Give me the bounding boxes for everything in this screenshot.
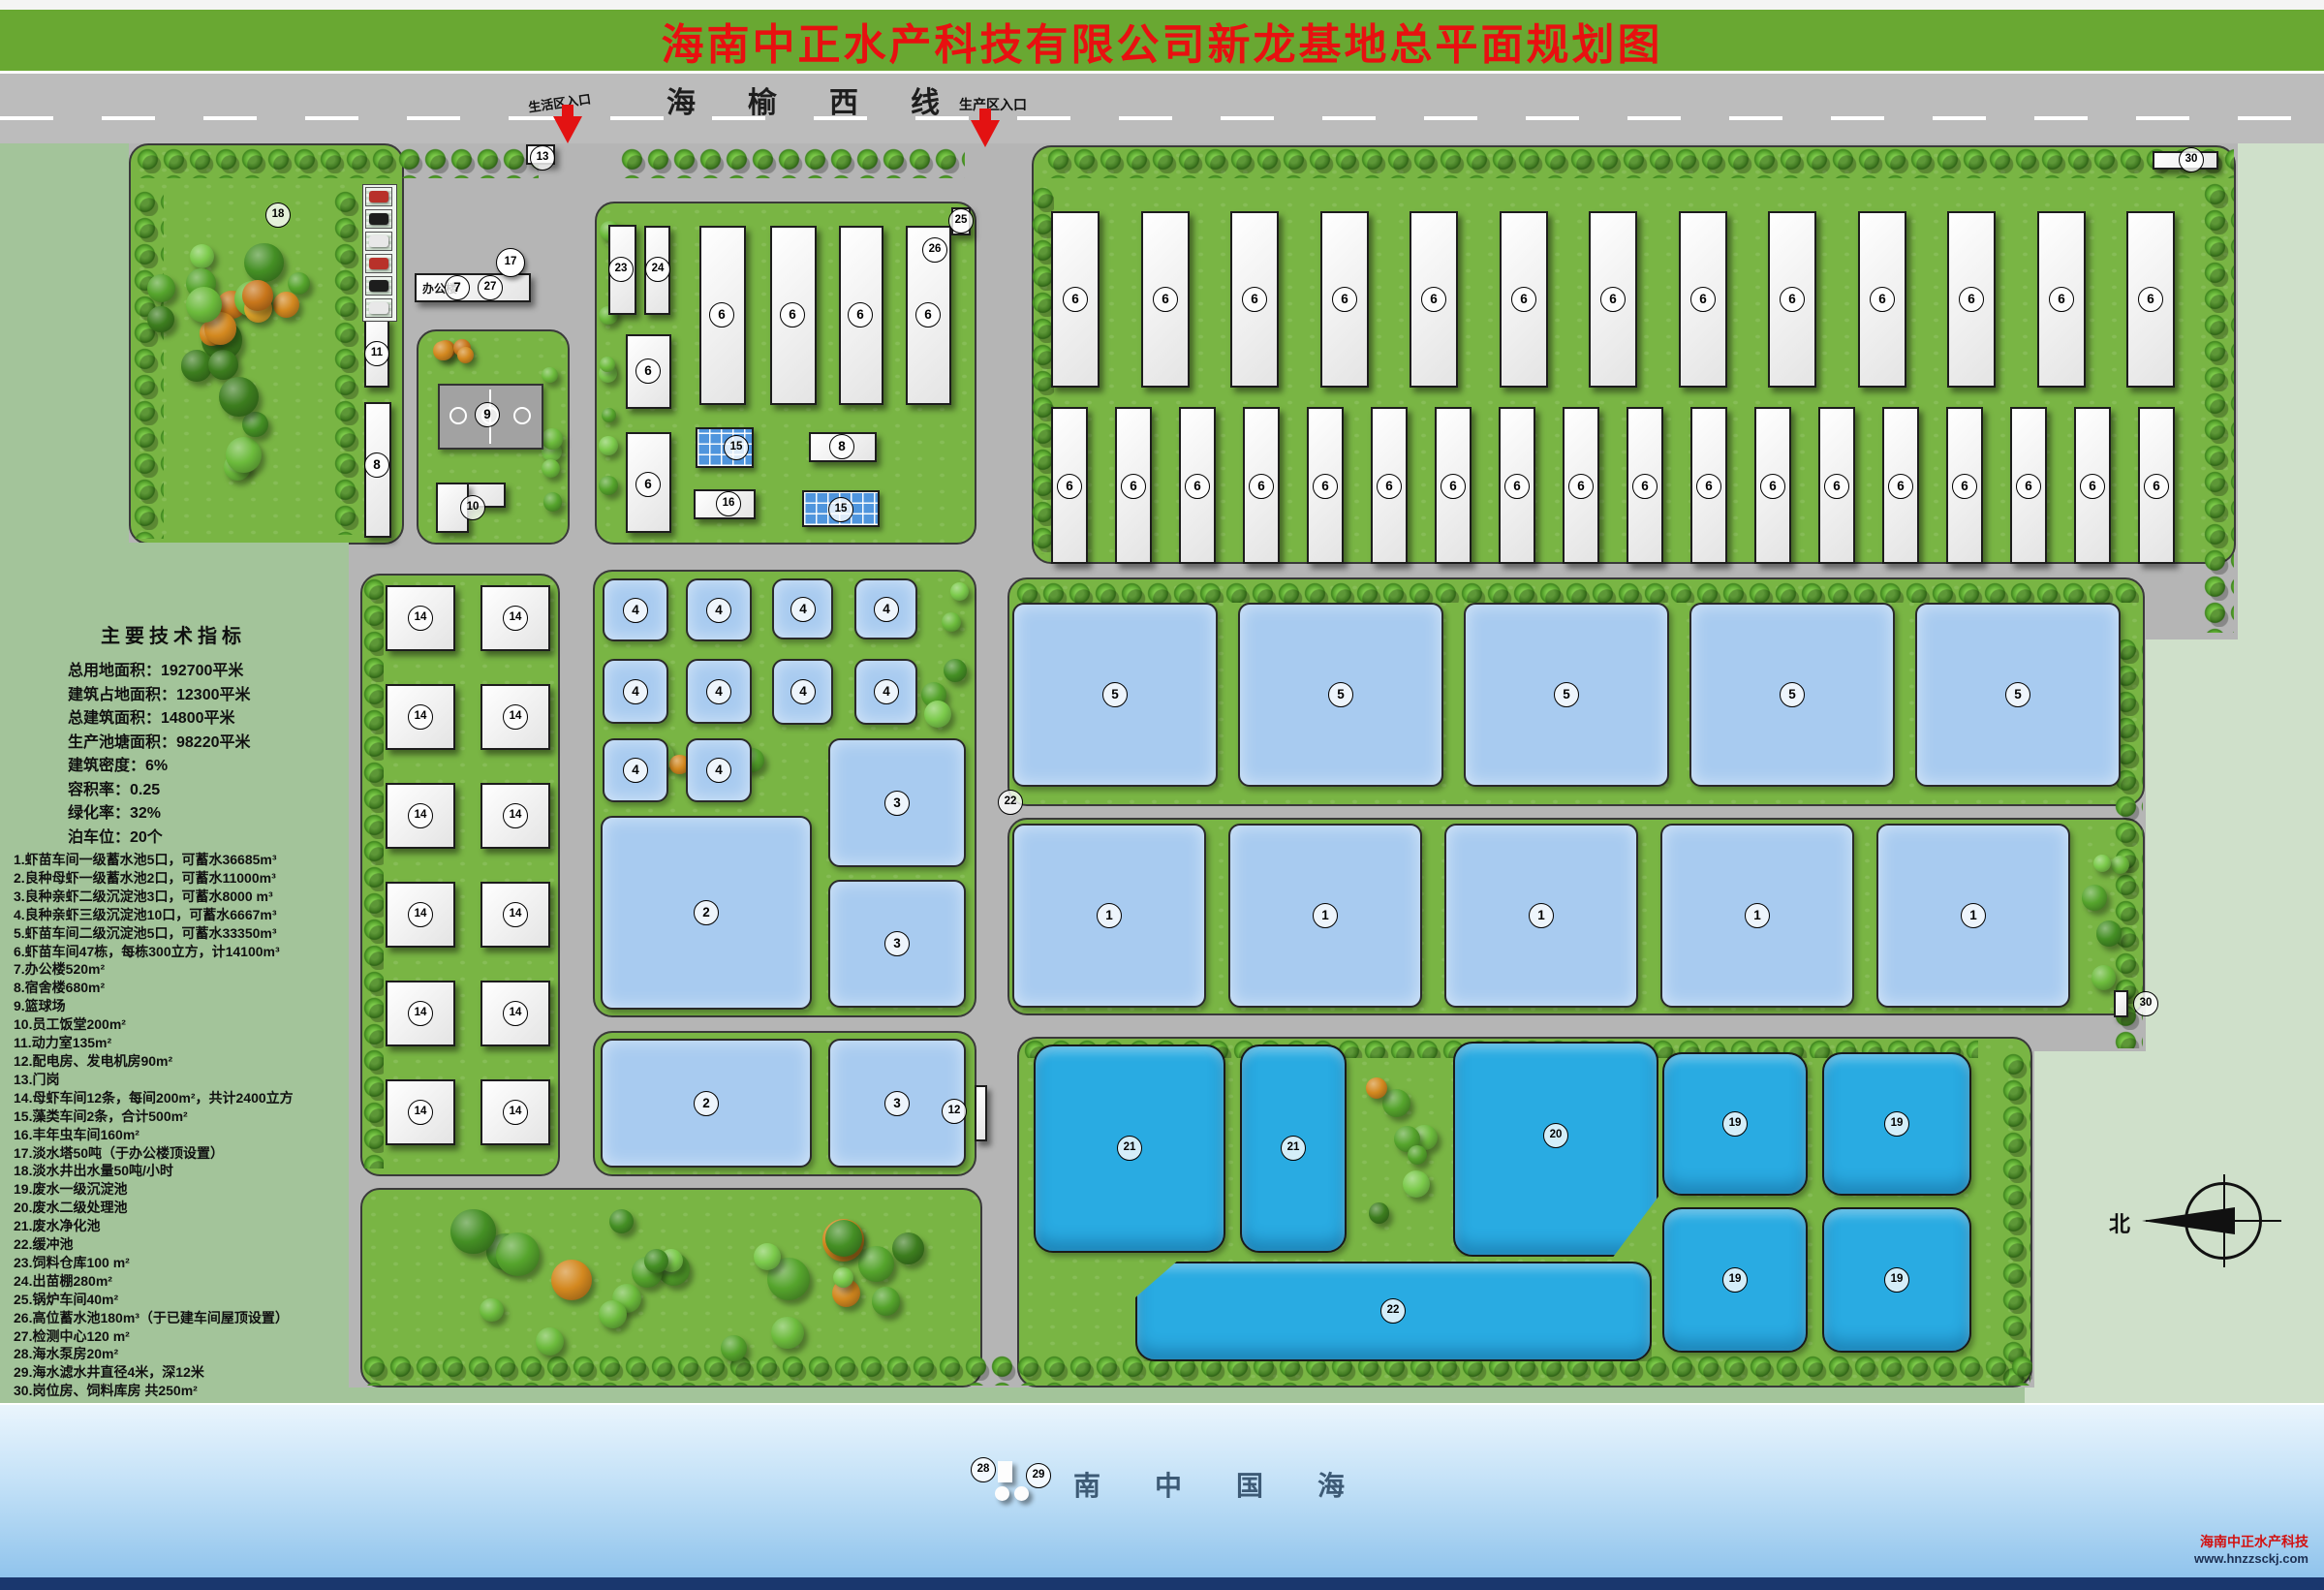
highway-name: 海榆西线 bbox=[666, 78, 992, 121]
tree-hedge bbox=[1046, 147, 2234, 178]
parking-slot bbox=[365, 209, 392, 229]
tree bbox=[543, 492, 563, 512]
legend-item-7: 7.办公楼520m² bbox=[14, 960, 387, 979]
road-center-dashed-line bbox=[0, 116, 2324, 120]
tree bbox=[721, 1335, 747, 1361]
treatment-pond bbox=[1822, 1052, 1971, 1196]
seawater-filter-well bbox=[995, 1486, 1009, 1501]
tree bbox=[924, 701, 951, 728]
building bbox=[1679, 211, 1727, 388]
production-pond bbox=[1228, 824, 1422, 1008]
seawater-pump-house bbox=[998, 1461, 1012, 1482]
tree bbox=[2093, 855, 2111, 872]
treatment-pond bbox=[1240, 1044, 1347, 1253]
building bbox=[626, 334, 671, 409]
building bbox=[906, 226, 951, 405]
tree bbox=[599, 436, 618, 455]
legend-item-14: 14.母虾车间12条，每间200m²，共计2400立方 bbox=[14, 1089, 387, 1107]
tree-hedge bbox=[362, 577, 384, 1169]
tech-line-6: 容积率：0.25 bbox=[68, 779, 339, 803]
building bbox=[1141, 211, 1190, 388]
building bbox=[1754, 407, 1791, 564]
building bbox=[480, 981, 550, 1046]
production-pond bbox=[772, 578, 833, 639]
legend-item-22: 22.缓冲池 bbox=[14, 1235, 387, 1254]
court-right-circle bbox=[513, 407, 531, 424]
treatment-pond bbox=[1135, 1262, 1652, 1361]
tree bbox=[944, 659, 967, 682]
building bbox=[1947, 211, 1996, 388]
building bbox=[1627, 407, 1663, 564]
building bbox=[694, 489, 756, 519]
production-pond bbox=[1464, 603, 1669, 787]
tech-line-7: 绿化率：32% bbox=[68, 802, 339, 826]
parking-slot bbox=[365, 187, 392, 206]
legend-item-17: 17.淡水塔50吨（于办公楼顶设置） bbox=[14, 1144, 387, 1163]
building bbox=[1307, 407, 1344, 564]
building bbox=[951, 207, 971, 235]
building bbox=[2153, 151, 2218, 170]
tree bbox=[450, 1209, 496, 1255]
tree bbox=[599, 1300, 627, 1328]
tree bbox=[771, 1317, 804, 1350]
legend-item-6: 6.虾苗车间47栋，每栋300立方，计14100m³ bbox=[14, 943, 387, 961]
building bbox=[1882, 407, 1919, 564]
building bbox=[839, 226, 883, 405]
building bbox=[1243, 407, 1280, 564]
tree bbox=[542, 459, 560, 478]
tech-line-1: 总用地面积：192700平米 bbox=[68, 660, 339, 684]
building bbox=[1499, 407, 1535, 564]
tree bbox=[433, 341, 453, 361]
tree bbox=[1369, 1202, 1390, 1224]
building bbox=[2074, 407, 2111, 564]
production-pond bbox=[686, 738, 752, 802]
tree-hedge bbox=[2203, 182, 2234, 633]
building bbox=[1115, 407, 1152, 564]
building bbox=[975, 1085, 987, 1141]
building bbox=[1410, 211, 1458, 388]
building bbox=[1179, 407, 1216, 564]
legend-item-8: 8.宿舍楼680m² bbox=[14, 979, 387, 997]
building bbox=[1051, 211, 1100, 388]
legend-item-13: 13.门岗 bbox=[14, 1071, 387, 1089]
legend-item-30: 30.岗位房、饲料库房 共250m² bbox=[14, 1382, 387, 1400]
tree bbox=[496, 1232, 540, 1276]
building bbox=[1946, 407, 1983, 564]
highway-haiyu-west-line: 海榆西线 bbox=[0, 71, 2324, 143]
building bbox=[386, 585, 455, 651]
footer-website: www.hnzzsckj.com bbox=[2194, 1551, 2309, 1566]
legend-item-25: 25.锅炉车间40m² bbox=[14, 1291, 387, 1309]
tree bbox=[825, 1220, 862, 1257]
legend-item-18: 18.淡水井出水量50吨/小时 bbox=[14, 1162, 387, 1180]
building bbox=[386, 882, 455, 948]
building bbox=[480, 1079, 550, 1145]
building bbox=[608, 225, 636, 315]
building bbox=[364, 318, 389, 388]
production-pond bbox=[603, 578, 668, 641]
production-pond bbox=[601, 1039, 812, 1168]
production-pond bbox=[686, 659, 752, 724]
tree bbox=[1403, 1170, 1430, 1198]
parking-slot bbox=[365, 254, 392, 273]
production-pond bbox=[601, 816, 812, 1010]
tree bbox=[644, 1249, 668, 1273]
building bbox=[1051, 407, 1088, 564]
footer-company: 海南中正水产科技 bbox=[2194, 1532, 2309, 1551]
legend-item-16: 16.丰年虫车间160m² bbox=[14, 1126, 387, 1144]
car bbox=[369, 258, 388, 269]
building bbox=[1858, 211, 1906, 388]
tree-hedge bbox=[136, 147, 539, 178]
production-pond bbox=[772, 659, 833, 725]
parking-slot bbox=[365, 276, 392, 296]
legend-item-4: 4.良种亲虾三级沉淀池10口，可蓄水6667m³ bbox=[14, 906, 387, 924]
car bbox=[369, 235, 388, 247]
car bbox=[369, 191, 388, 203]
top-margin bbox=[0, 0, 2324, 10]
tree bbox=[190, 244, 214, 268]
tree bbox=[244, 243, 283, 282]
legend-item-12: 12.配电房、发电机房90m² bbox=[14, 1052, 387, 1071]
building bbox=[386, 1079, 455, 1145]
tree-hedge bbox=[133, 190, 164, 539]
treatment-pond bbox=[1822, 1207, 1971, 1353]
site-master-plan: 海南中正水产科技有限公司新龙基地总平面规划图 海榆西线 南中国海 海南中正水产科… bbox=[0, 0, 2324, 1590]
tech-line-3: 总建筑面积：14800平米 bbox=[68, 707, 339, 732]
legend-item-9: 9.篮球场 bbox=[14, 997, 387, 1015]
tree bbox=[542, 428, 562, 449]
tree bbox=[1408, 1145, 1427, 1165]
building bbox=[1435, 407, 1472, 564]
tree-hedge bbox=[333, 190, 360, 535]
production-pond bbox=[1876, 824, 2070, 1008]
production-pond bbox=[854, 659, 917, 725]
legend-item-27: 27.检测中心120 m² bbox=[14, 1327, 387, 1346]
tree bbox=[542, 367, 557, 383]
tree bbox=[2092, 965, 2117, 990]
tree bbox=[872, 1287, 901, 1316]
building bbox=[480, 684, 550, 750]
building bbox=[1768, 211, 1816, 388]
building bbox=[364, 402, 391, 538]
building bbox=[386, 783, 455, 849]
legend-item-21: 21.废水净化池 bbox=[14, 1217, 387, 1235]
footer-logo: 海南中正水产科技 www.hnzzsckj.com bbox=[2194, 1532, 2309, 1566]
building bbox=[770, 226, 817, 405]
production-pond bbox=[828, 880, 966, 1008]
building bbox=[480, 783, 550, 849]
legend-item-26: 26.高位蓄水池180m³（于已建车间屋顶设置） bbox=[14, 1309, 387, 1327]
building bbox=[699, 226, 746, 405]
parking-slot bbox=[365, 298, 392, 318]
building bbox=[480, 882, 550, 948]
tech-line-8: 泊车位：20个 bbox=[68, 826, 339, 851]
site-area bbox=[0, 143, 2324, 1387]
production-pond bbox=[854, 578, 917, 639]
tree bbox=[219, 377, 259, 417]
technical-indicators-title: 主要技术指标 bbox=[101, 620, 339, 648]
production-pond bbox=[1660, 824, 1854, 1008]
production-pond bbox=[686, 578, 752, 641]
treatment-pond bbox=[1662, 1052, 1808, 1196]
building bbox=[1690, 407, 1727, 564]
tech-line-5: 建筑密度：6% bbox=[68, 755, 339, 779]
building bbox=[480, 585, 550, 651]
car bbox=[369, 302, 388, 314]
legend-item-28: 28.海水泵房20m² bbox=[14, 1345, 387, 1363]
bottom-border-strip bbox=[0, 1577, 2324, 1590]
legend-item-11: 11.动力室135m² bbox=[14, 1034, 387, 1052]
building bbox=[2037, 211, 2086, 388]
building bbox=[526, 144, 555, 165]
production-pond bbox=[828, 738, 966, 867]
production-pond bbox=[1444, 824, 1638, 1008]
legend-item-29: 29.海水滤水井直径4米，深12米 bbox=[14, 1363, 387, 1382]
legend-item-24: 24.出苗棚280m² bbox=[14, 1272, 387, 1291]
building bbox=[436, 483, 469, 533]
tree bbox=[600, 357, 615, 372]
building bbox=[1500, 211, 1548, 388]
building bbox=[415, 273, 531, 302]
building bbox=[809, 432, 877, 462]
algae-pool bbox=[696, 427, 754, 468]
building bbox=[2010, 407, 2047, 564]
legend-item-19: 19.废水一级沉淀池 bbox=[14, 1180, 387, 1199]
sea-label: 南中国海 bbox=[1073, 1465, 1399, 1504]
seawater-filter-well bbox=[1014, 1486, 1029, 1501]
legend-item-5: 5.虾苗车间二级沉淀池5口，可蓄水33350m³ bbox=[14, 924, 387, 943]
building bbox=[386, 684, 455, 750]
car bbox=[369, 213, 388, 225]
building bbox=[2138, 407, 2175, 564]
building bbox=[1320, 211, 1369, 388]
technical-indicators-lines: 总用地面积：192700平米建筑占地面积：12300平米总建筑面积：14800平… bbox=[68, 660, 339, 850]
treatment-pond bbox=[1034, 1044, 1225, 1253]
building bbox=[1230, 211, 1279, 388]
court-left-circle bbox=[449, 407, 467, 424]
legend-item-15: 15.藻类车间2条，合计500m² bbox=[14, 1107, 387, 1126]
tree bbox=[609, 1209, 634, 1233]
building bbox=[1563, 407, 1599, 564]
tree bbox=[208, 350, 238, 380]
parking-strip bbox=[362, 184, 397, 322]
parking-slot bbox=[365, 232, 392, 251]
sea-area: 南中国海 海南中正水产科技 www.hnzzsckj.com bbox=[0, 1403, 2324, 1579]
production-pond bbox=[603, 659, 668, 724]
legend-lines: 1.虾苗车间一级蓄水池5口，可蓄水36685m³2.良种母虾一级蓄水池2口，可蓄… bbox=[14, 851, 387, 1400]
production-pond bbox=[1238, 603, 1443, 787]
production-pond bbox=[603, 738, 668, 802]
tree-hedge bbox=[2001, 1052, 2030, 1386]
title-band: 海南中正水产科技有限公司新龙基地总平面规划图 bbox=[0, 10, 2324, 71]
tree bbox=[754, 1243, 781, 1270]
legend-item-20: 20.废水二级处理池 bbox=[14, 1199, 387, 1217]
legend-item-1: 1.虾苗车间一级蓄水池5口，可蓄水36685m³ bbox=[14, 851, 387, 869]
tree bbox=[242, 280, 273, 311]
technical-indicators-panel: 主要技术指标 总用地面积：192700平米建筑占地面积：12300平米总建筑面积… bbox=[68, 620, 339, 850]
basketball-court bbox=[438, 384, 543, 450]
page-title: 海南中正水产科技有限公司新龙基地总平面规划图 bbox=[662, 10, 1663, 72]
production-pond bbox=[1012, 824, 1206, 1008]
car bbox=[369, 280, 388, 292]
tree bbox=[147, 306, 173, 332]
legend-panel: 1.虾苗车间一级蓄水池5口，可蓄水36685m³2.良种母虾一级蓄水池2口，可蓄… bbox=[14, 851, 387, 1400]
legend-item-23: 23.饲料仓库100 m² bbox=[14, 1254, 387, 1272]
tree bbox=[226, 437, 262, 473]
algae-pool bbox=[802, 490, 880, 527]
building bbox=[386, 981, 455, 1046]
production-pond bbox=[1915, 603, 2121, 787]
treatment-pond bbox=[1662, 1207, 1808, 1353]
tree-hedge bbox=[1015, 581, 2139, 603]
tech-line-4: 生产池塘面积：98220平米 bbox=[68, 732, 339, 756]
tech-line-2: 建筑占地面积：12300平米 bbox=[68, 684, 339, 708]
tree bbox=[2082, 885, 2108, 911]
tree-hedge bbox=[620, 147, 965, 178]
legend-item-10: 10.员工饭堂200m² bbox=[14, 1015, 387, 1034]
treatment-pond bbox=[1453, 1042, 1658, 1257]
building bbox=[626, 432, 671, 533]
building bbox=[1589, 211, 1637, 388]
building bbox=[2114, 990, 2128, 1017]
building bbox=[2126, 211, 2175, 388]
production-pond bbox=[1012, 603, 1218, 787]
production-pond bbox=[828, 1039, 966, 1168]
court-center-circle bbox=[481, 407, 499, 424]
production-pond bbox=[1689, 603, 1895, 787]
legend-item-2: 2.良种母虾一级蓄水池2口，可蓄水11000m³ bbox=[14, 869, 387, 888]
legend-item-3: 3.良种亲虾二级沉淀池3口，可蓄水8000 m³ bbox=[14, 888, 387, 906]
tree bbox=[602, 408, 616, 422]
building bbox=[644, 226, 670, 315]
building bbox=[1371, 407, 1408, 564]
building bbox=[1818, 407, 1855, 564]
